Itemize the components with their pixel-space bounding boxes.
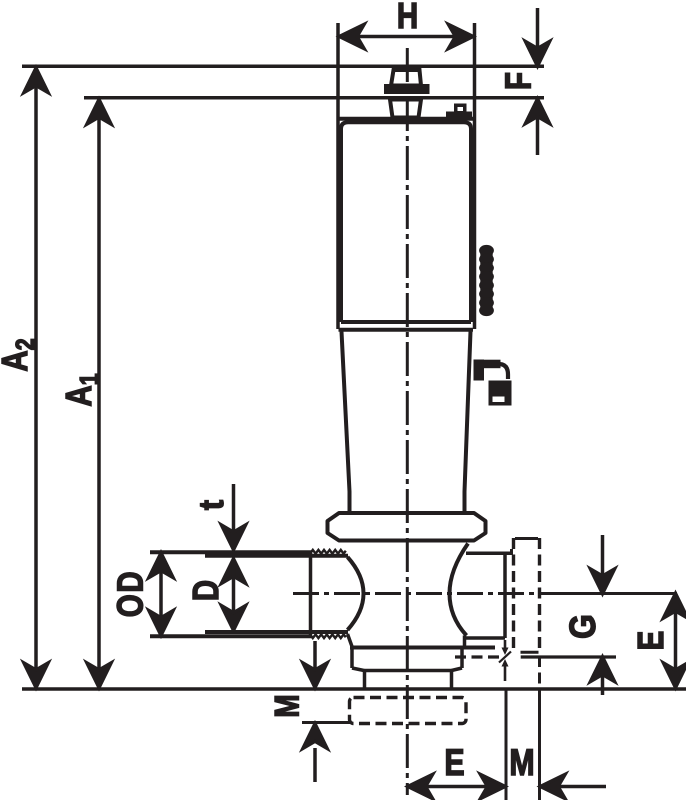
svg-text:G: G — [563, 614, 603, 639]
svg-text:A2: A2 — [0, 338, 41, 371]
svg-text:A1: A1 — [58, 373, 104, 406]
svg-text:D: D — [185, 580, 225, 601]
svg-text:M: M — [268, 694, 306, 717]
svg-text:H: H — [397, 0, 418, 36]
svg-text:E: E — [444, 742, 464, 784]
svg-text:t: t — [193, 500, 231, 510]
svg-text:F: F — [498, 72, 538, 90]
svg-text:E: E — [630, 631, 670, 651]
svg-text:M: M — [509, 742, 534, 784]
svg-text:OD: OD — [110, 570, 150, 618]
